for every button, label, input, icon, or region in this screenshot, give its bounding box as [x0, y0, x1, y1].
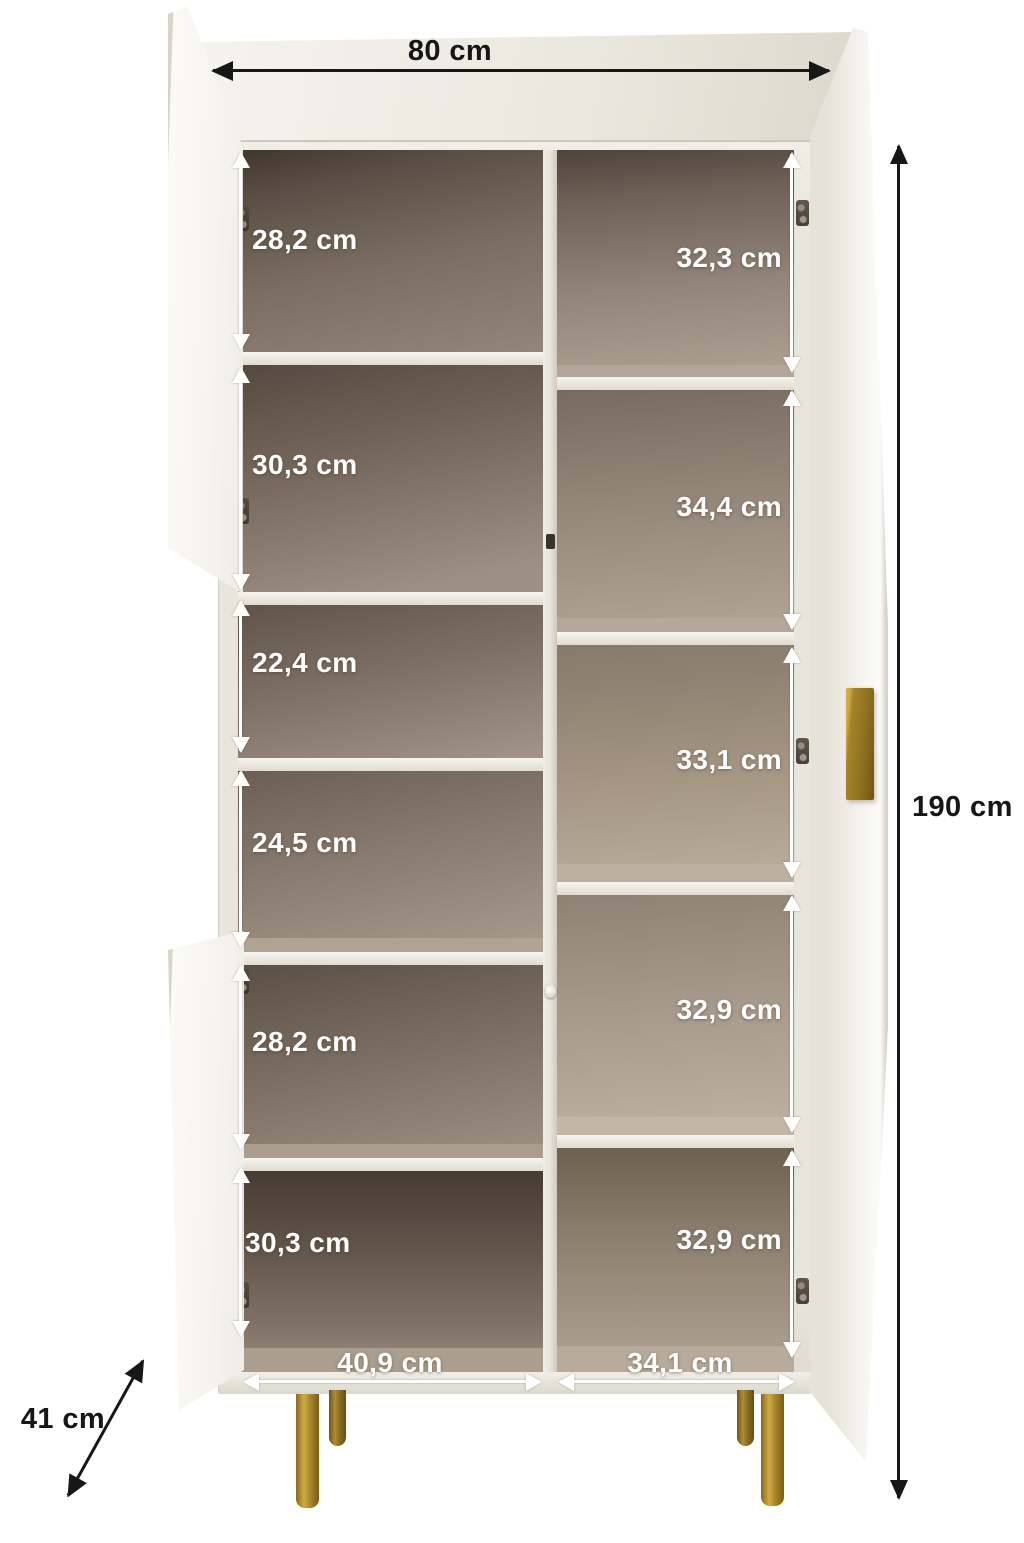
cabinet-leg-back-right [737, 1390, 754, 1446]
shelf [238, 592, 543, 605]
compartment-left-6 [238, 1171, 543, 1372]
shelf [557, 1135, 794, 1148]
overall-width-label: 80 cm [350, 36, 550, 68]
compartment-height-label: 28,2 cm [252, 225, 358, 256]
compartment-width-label: 40,9 cm [310, 1348, 470, 1379]
compartment-height-label: 22,4 cm [252, 648, 358, 679]
door-knob [545, 984, 556, 998]
shelf [557, 632, 794, 645]
cabinet-dimension-diagram: 80 cm 190 cm 41 cm 28,2 cm 30,3 cm 22,4 … [0, 0, 1024, 1543]
cabinet-leg-front-right [761, 1394, 784, 1506]
hinge-icon [796, 1278, 809, 1304]
door-catch [546, 534, 555, 549]
compartment-height-arrow [239, 602, 242, 751]
shelf [238, 1158, 543, 1171]
height-dimension-arrow [897, 146, 900, 1498]
compartment-height-label: 32,9 cm [632, 995, 782, 1026]
shelf [238, 352, 543, 365]
compartment-height-label: 32,9 cm [632, 1225, 782, 1256]
overall-height-label: 190 cm [912, 792, 1013, 824]
compartment-height-arrow [790, 1152, 793, 1356]
compartment-height-label: 33,1 cm [632, 745, 782, 776]
compartment-left-4 [238, 771, 543, 952]
compartment-height-label: 32,3 cm [632, 243, 782, 274]
compartment-height-arrow [790, 392, 793, 628]
width-dimension-arrow [213, 69, 829, 72]
compartment-height-arrow [239, 369, 242, 588]
compartment-height-arrow [239, 1169, 242, 1335]
compartment-height-label: 30,3 cm [252, 450, 358, 481]
compartment-height-label: 24,5 cm [252, 828, 358, 859]
center-divider [543, 150, 557, 1372]
shelf [238, 758, 543, 771]
compartment-width-label: 34,1 cm [600, 1348, 760, 1379]
hinge-icon [796, 738, 809, 764]
compartment-height-arrow [239, 154, 242, 348]
shelf [238, 952, 543, 965]
compartment-right-5 [557, 1148, 794, 1372]
compartment-width-arrow [560, 1380, 793, 1383]
hinge-icon [796, 200, 809, 226]
cabinet-leg-back-left [329, 1390, 346, 1446]
compartment-height-label: 28,2 cm [252, 1027, 358, 1058]
compartment-height-arrow [790, 154, 793, 371]
shelf [557, 377, 794, 390]
compartment-height-arrow [239, 967, 242, 1148]
compartment-width-arrow [245, 1380, 540, 1383]
shelf [557, 882, 794, 895]
compartment-height-arrow [790, 897, 793, 1131]
compartment-height-label: 30,3 cm [245, 1228, 351, 1259]
compartment-height-label: 34,4 cm [632, 492, 782, 523]
compartment-left-3 [238, 605, 543, 758]
compartment-height-arrow [239, 772, 242, 946]
compartment-left-5 [238, 965, 543, 1158]
cabinet-leg-front-left [296, 1394, 319, 1508]
compartment-height-arrow [790, 649, 793, 876]
door-handle [846, 688, 874, 800]
